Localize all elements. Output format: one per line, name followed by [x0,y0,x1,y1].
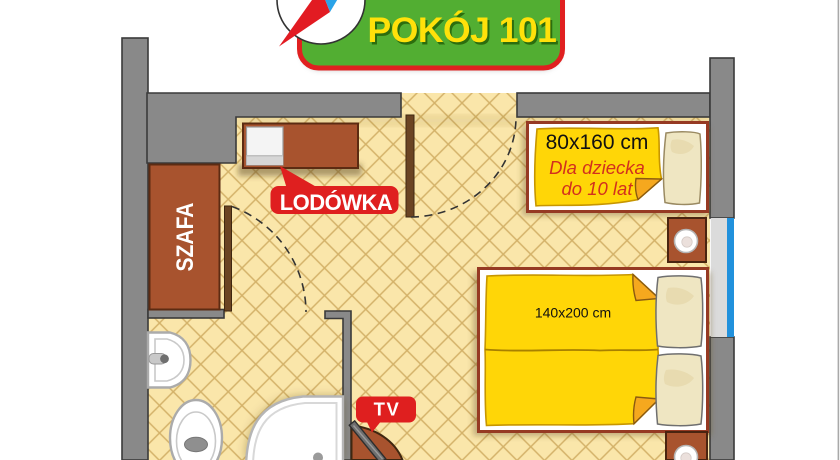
svg-text:LODÓWKA: LODÓWKA [280,190,393,215]
svg-text:140x200 cm: 140x200 cm [535,305,611,321]
svg-text:do 10 lat: do 10 lat [562,178,634,199]
svg-text:POKÓJ 101: POKÓJ 101 [368,10,557,50]
svg-text:TV: TV [374,399,401,420]
svg-text:SZAFA: SZAFA [170,202,198,271]
svg-text:Dla dziecka: Dla dziecka [549,157,645,178]
svg-text:80x160 cm: 80x160 cm [546,131,649,154]
